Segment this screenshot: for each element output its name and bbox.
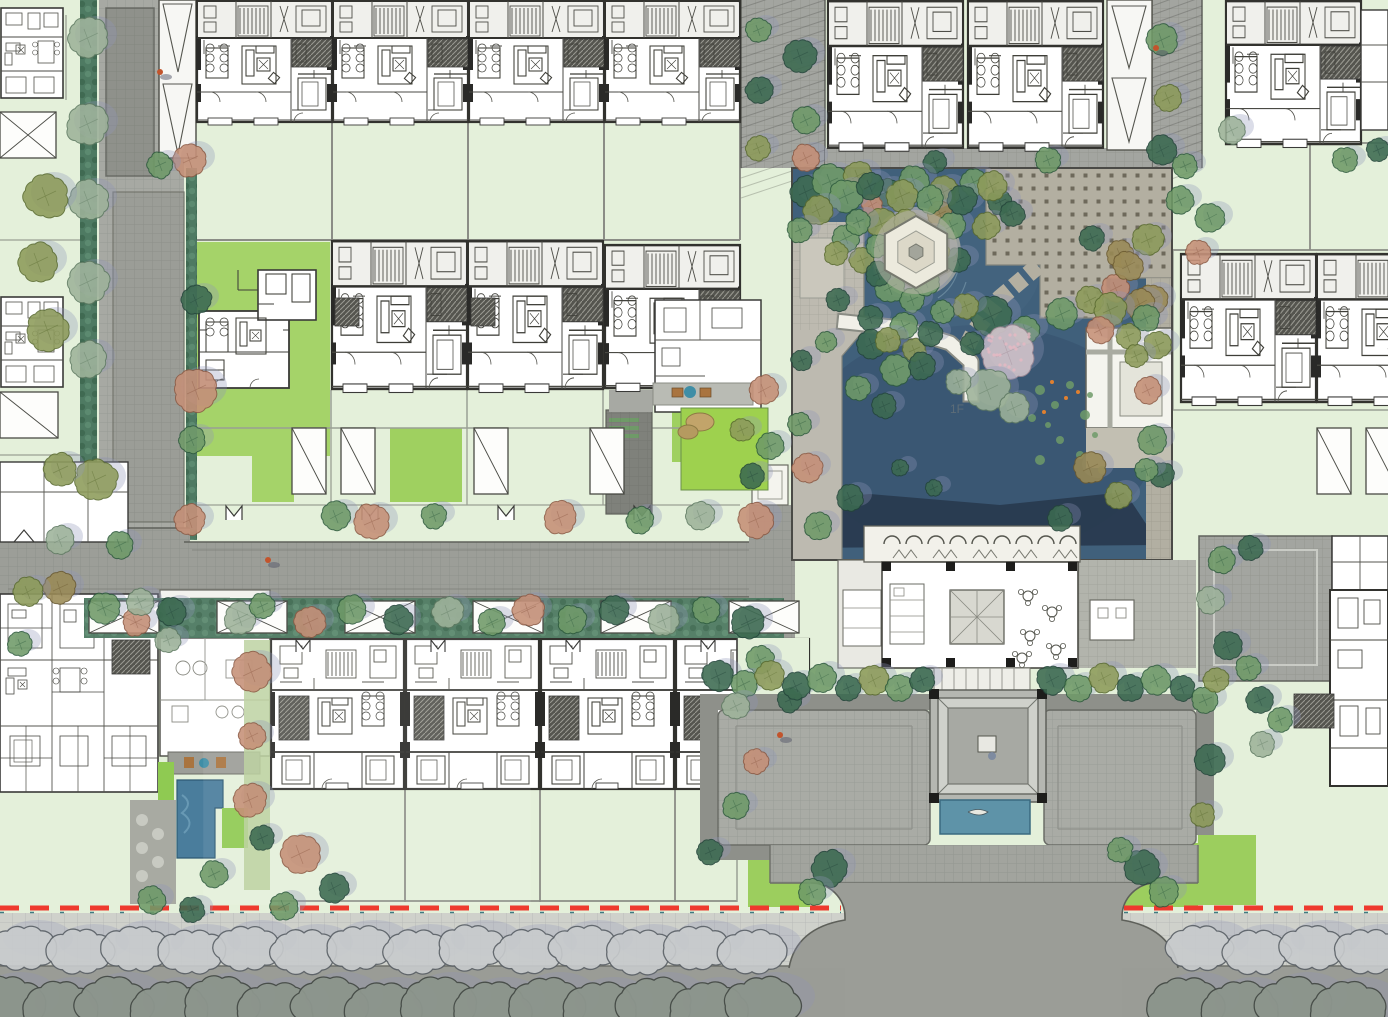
svg-text:1F: 1F [950, 402, 964, 416]
